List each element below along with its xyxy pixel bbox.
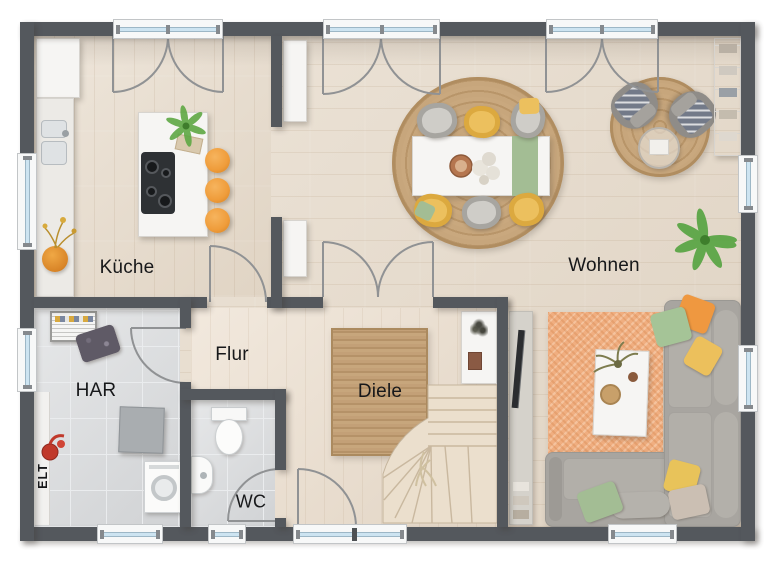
fruit-bowl xyxy=(42,246,68,272)
glass-pane xyxy=(25,158,30,245)
burner-icon xyxy=(158,194,172,208)
books xyxy=(719,88,737,97)
bar-stool xyxy=(205,178,230,203)
frame-tick xyxy=(611,530,615,539)
faucet-icon xyxy=(62,130,69,137)
chair-seat xyxy=(468,110,495,133)
room-label-har: HAR xyxy=(76,380,117,402)
frame-tick xyxy=(651,25,655,34)
glass-pane xyxy=(213,532,241,537)
storage-box xyxy=(118,406,165,454)
frame-tick xyxy=(23,331,32,335)
chair-seat xyxy=(513,196,541,222)
frame-tick xyxy=(744,348,753,352)
room-label-elt: ELT xyxy=(36,463,50,489)
chair-seat xyxy=(466,200,497,225)
door-handle-icon xyxy=(352,528,357,541)
toilet-bowl xyxy=(215,419,243,455)
chair-seat xyxy=(420,106,453,135)
room-label-wc: WC xyxy=(236,492,266,513)
glass-pane xyxy=(102,532,158,537)
tv-screen xyxy=(512,330,525,408)
books xyxy=(719,110,737,119)
dining-chair xyxy=(463,105,501,139)
books xyxy=(513,510,529,519)
books xyxy=(719,66,737,75)
frame-tick xyxy=(211,530,215,539)
kitchen-sink xyxy=(41,141,67,165)
washer-door-icon xyxy=(151,475,177,501)
window-living-right-lower xyxy=(738,345,758,412)
tall-cabinet xyxy=(283,40,307,122)
burner-icon xyxy=(161,168,171,178)
frame-tick xyxy=(216,25,220,34)
frame-tick xyxy=(23,156,32,160)
room-label-flur: Flur xyxy=(215,344,249,366)
washing-machine xyxy=(144,461,182,513)
frame-tick xyxy=(744,158,753,162)
terrace-door-kitchen xyxy=(113,19,223,39)
frame-tick xyxy=(116,25,120,34)
glass-pane xyxy=(746,350,751,407)
frame-tick xyxy=(23,385,32,389)
sofa-armrest xyxy=(549,457,562,521)
frame-tick xyxy=(326,25,330,34)
frame-tick xyxy=(600,25,604,34)
wall-kitchen-stub-bottom xyxy=(271,217,282,308)
window-har-bottom xyxy=(97,524,163,544)
glass-pane xyxy=(746,160,751,208)
glass-pane xyxy=(298,532,402,537)
wall-kitchen-stub-top xyxy=(271,36,282,127)
room-label-kueche: Küche xyxy=(100,257,155,279)
frame-tick xyxy=(744,206,753,210)
bookshelf xyxy=(714,38,741,156)
bar-stool xyxy=(205,148,230,173)
frame-tick xyxy=(433,25,437,34)
tv-sideboard xyxy=(509,311,533,525)
frame-tick xyxy=(400,530,404,539)
burner-icon xyxy=(145,160,159,174)
window-kitchen-left xyxy=(17,153,37,250)
terrace-door-living xyxy=(546,19,658,39)
washer-controls xyxy=(149,465,179,469)
wash-basin xyxy=(191,456,213,494)
frame-tick xyxy=(380,25,384,34)
window-living-right-upper xyxy=(738,155,758,213)
frame-tick xyxy=(670,530,674,539)
floor-plan: Küche Wohnen Flur Diele HAR WC ELT xyxy=(0,0,775,563)
glass-side-table xyxy=(638,127,680,169)
entrance-door xyxy=(293,524,407,544)
books xyxy=(513,482,529,491)
decor-branch xyxy=(470,316,488,338)
window-wc-bottom xyxy=(208,524,246,544)
room-label-diele: Diele xyxy=(358,381,402,403)
wall-har-right-upper xyxy=(180,297,191,328)
table-runner xyxy=(512,136,538,196)
stair-shelf xyxy=(461,311,497,384)
frame-tick xyxy=(549,25,553,34)
books xyxy=(468,352,482,370)
frame-tick xyxy=(166,25,170,34)
bar-stool xyxy=(205,208,230,233)
throw-blanket xyxy=(519,98,540,115)
wall-wc-top xyxy=(180,389,286,400)
glass-pane xyxy=(25,333,30,387)
books xyxy=(513,496,529,505)
frame-tick xyxy=(239,530,243,539)
sofa-bolster xyxy=(714,412,738,518)
books xyxy=(719,132,737,141)
window-har-left xyxy=(17,328,37,392)
wall-stair-right xyxy=(497,297,508,527)
kitchen-tall-unit xyxy=(36,38,80,98)
wall-exterior-right xyxy=(741,22,755,541)
books xyxy=(719,44,737,53)
frame-tick xyxy=(23,243,32,247)
elt-panel xyxy=(34,392,50,525)
wall-exterior-left xyxy=(20,22,34,541)
frame-tick xyxy=(296,530,300,539)
laundry-items xyxy=(55,316,93,322)
drain-icon xyxy=(200,472,207,479)
wall-wc-right-lower xyxy=(275,518,286,527)
tall-cabinet xyxy=(283,220,307,277)
window-living-bottom xyxy=(608,524,677,544)
room-label-wohnen: Wohnen xyxy=(568,255,640,277)
frame-tick xyxy=(156,530,160,539)
wall-wc-right-upper xyxy=(275,389,286,470)
frame-tick xyxy=(100,530,104,539)
terrace-door-dining xyxy=(323,19,440,39)
tray-papers xyxy=(649,139,669,155)
cooktop xyxy=(141,152,175,214)
burner-icon xyxy=(146,186,157,197)
wall-har-right-lower xyxy=(180,382,191,527)
decor-tray xyxy=(600,384,621,405)
glass-pane xyxy=(613,532,672,537)
frame-tick xyxy=(744,405,753,409)
vase xyxy=(628,372,638,382)
